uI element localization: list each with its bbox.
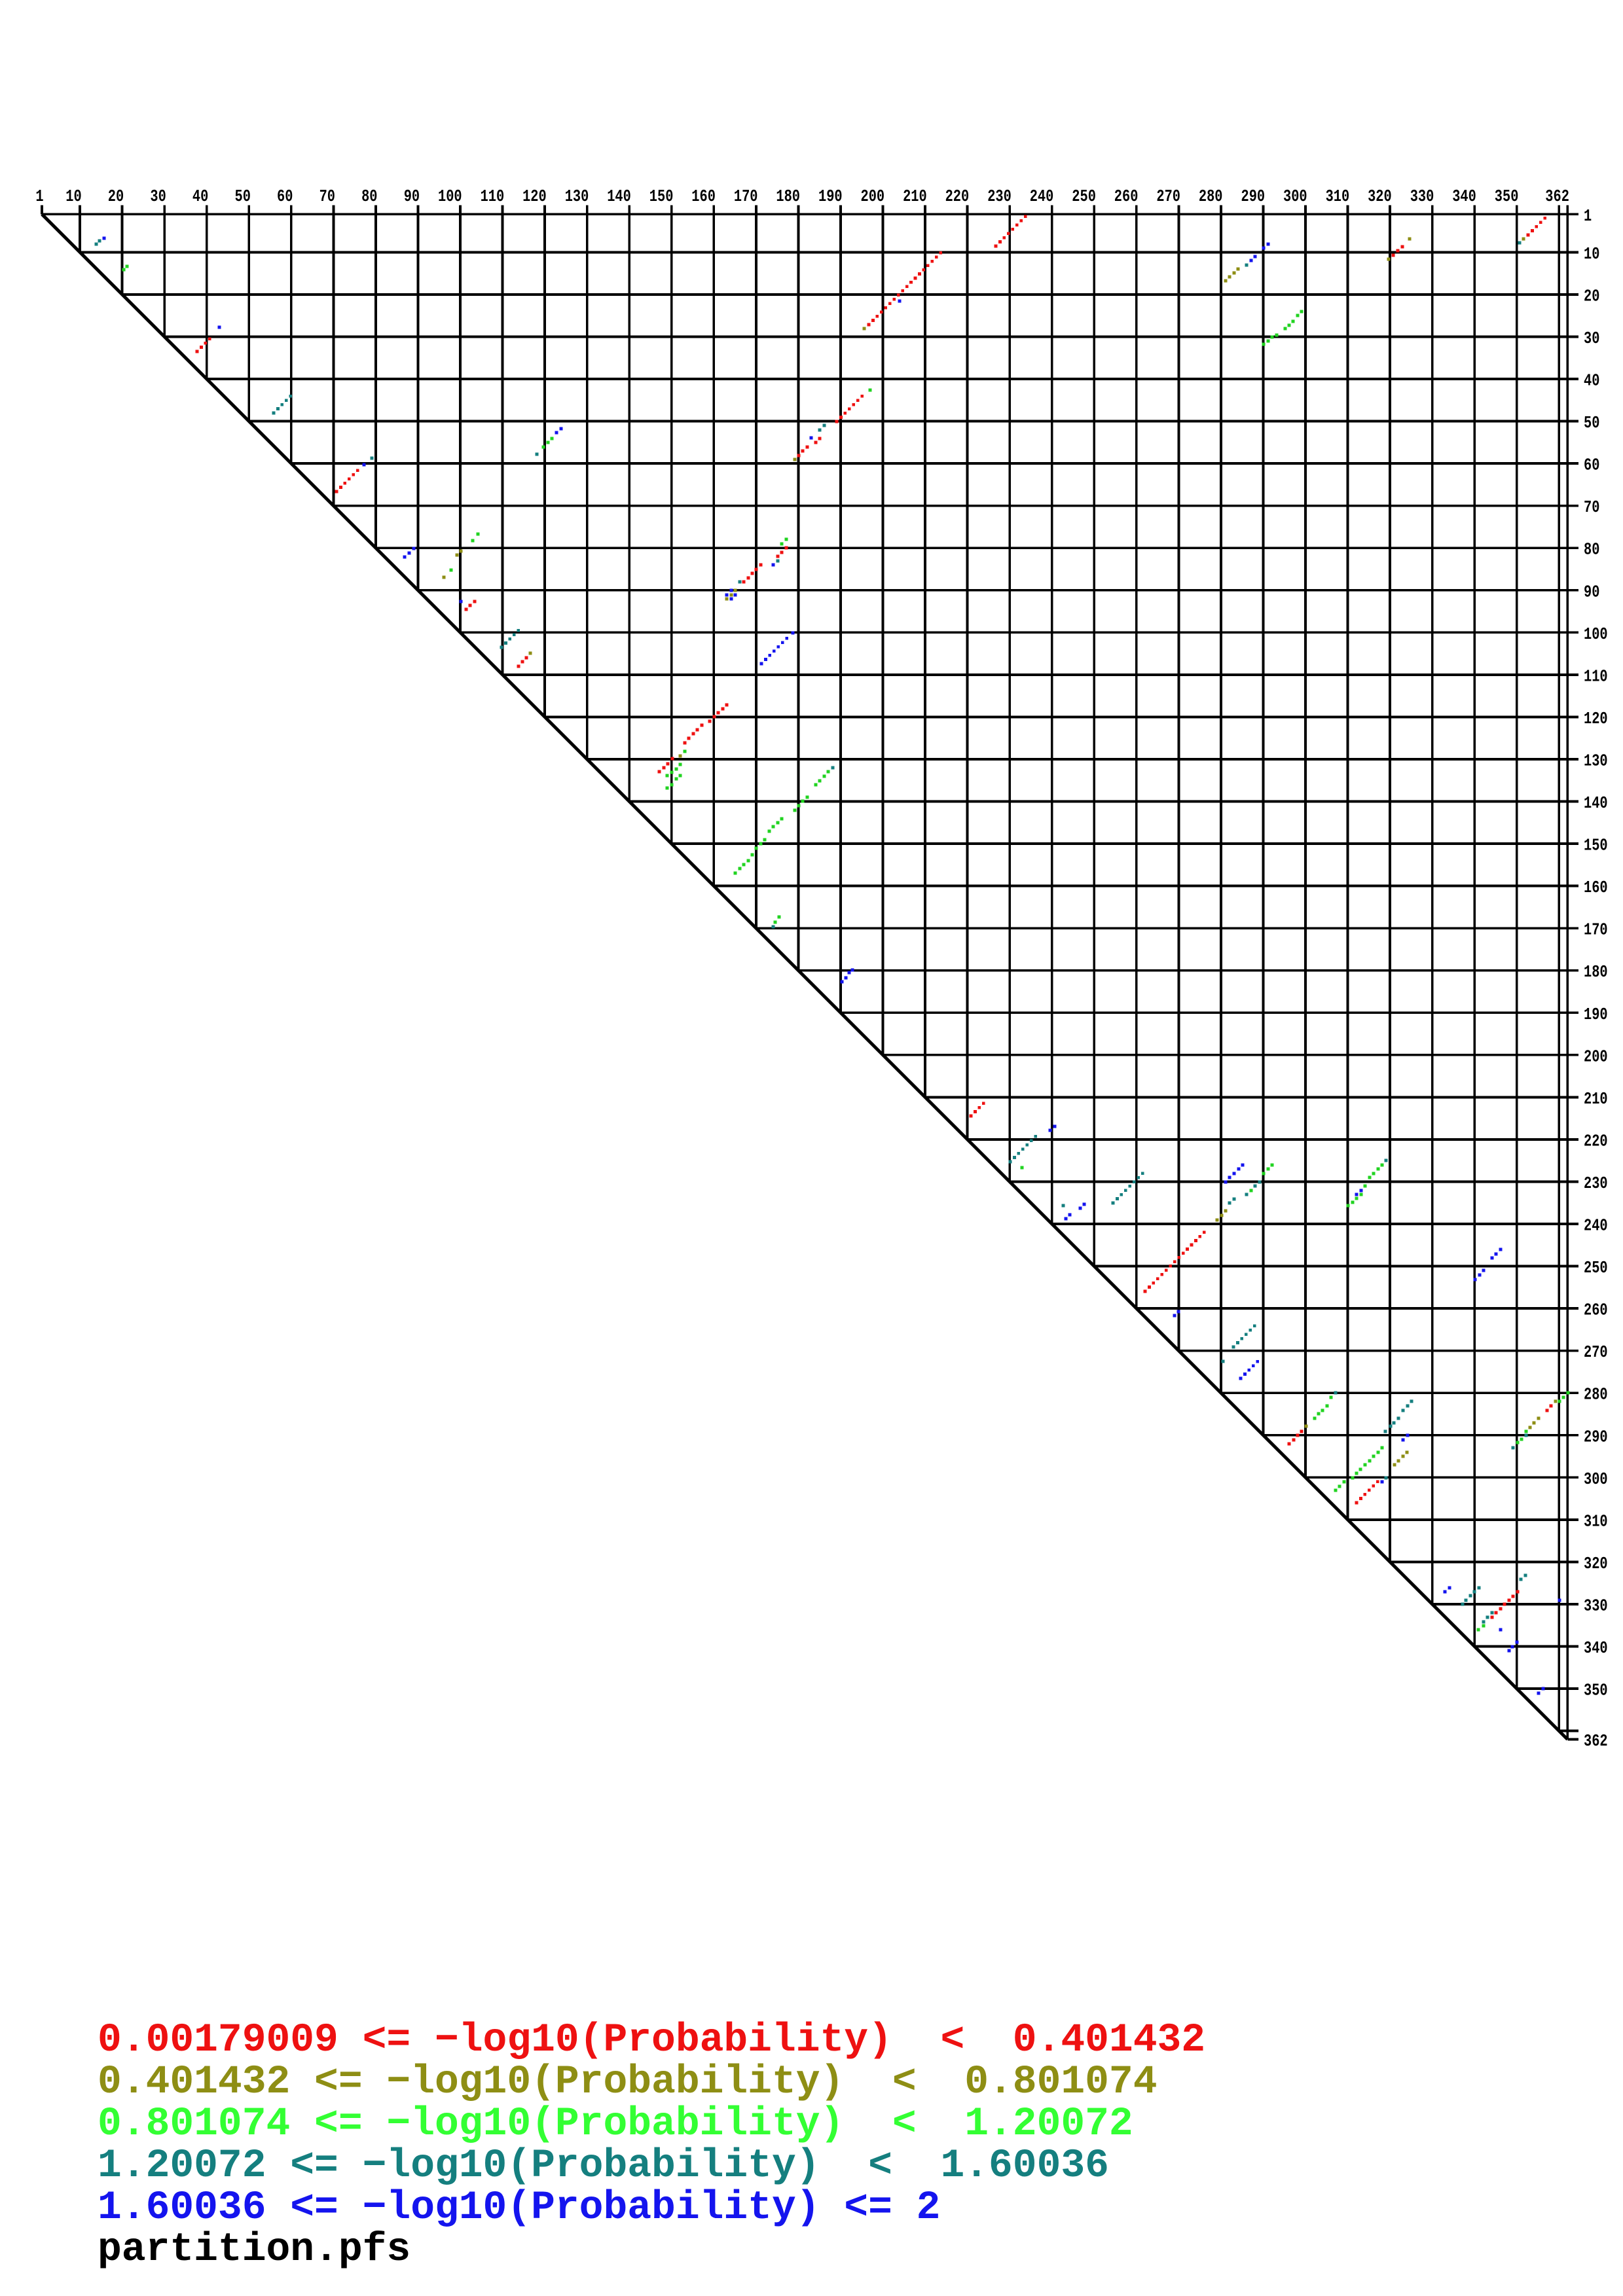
svg-text:110: 110 [481,187,505,206]
svg-text:340: 340 [1452,187,1476,206]
svg-text:0.801074 <= −log10(Probability: 0.801074 <= −log10(Probability) < 1.2007… [98,2102,1133,2147]
svg-text:0.401432 <= −log10(Probability: 0.401432 <= −log10(Probability) < 0.8010… [98,2060,1158,2105]
svg-text:320: 320 [1584,1554,1608,1573]
svg-text:350: 350 [1495,187,1519,206]
svg-text:30: 30 [150,187,166,206]
svg-text:1: 1 [35,187,43,206]
svg-text:10: 10 [1584,245,1599,264]
svg-text:70: 70 [319,187,335,206]
svg-text:160: 160 [1584,878,1608,897]
svg-text:290: 290 [1584,1427,1608,1446]
svg-text:60: 60 [1584,456,1599,475]
svg-text:60: 60 [277,187,293,206]
svg-text:280: 280 [1584,1386,1608,1405]
svg-text:140: 140 [607,187,631,206]
svg-text:90: 90 [404,187,420,206]
svg-text:150: 150 [649,187,674,206]
svg-text:120: 120 [522,187,547,206]
svg-text:220: 220 [945,187,970,206]
svg-text:190: 190 [818,187,843,206]
svg-text:362: 362 [1584,1732,1608,1751]
svg-text:0.00179009 <= −log10(Probabili: 0.00179009 <= −log10(Probability) < 0.40… [98,2018,1205,2063]
svg-text:320: 320 [1368,187,1392,206]
svg-text:240: 240 [1030,187,1054,206]
svg-text:40: 40 [1584,372,1599,391]
svg-text:110: 110 [1584,667,1608,686]
svg-text:230: 230 [987,187,1012,206]
svg-text:130: 130 [1584,752,1608,771]
svg-text:330: 330 [1410,187,1434,206]
svg-text:170: 170 [1584,921,1608,940]
svg-text:210: 210 [903,187,927,206]
svg-text:180: 180 [1584,963,1608,982]
svg-text:310: 310 [1326,187,1350,206]
svg-text:50: 50 [1584,414,1599,433]
svg-text:280: 280 [1199,187,1223,206]
svg-text:160: 160 [691,187,716,206]
svg-text:150: 150 [1584,836,1608,855]
svg-text:200: 200 [861,187,885,206]
svg-text:350: 350 [1584,1681,1608,1700]
svg-text:70: 70 [1584,498,1599,517]
svg-text:170: 170 [734,187,758,206]
svg-text:1.20072 <= −log10(Probability): 1.20072 <= −log10(Probability) < 1.60036 [98,2144,1109,2189]
svg-text:10: 10 [65,187,81,206]
svg-text:250: 250 [1584,1259,1608,1278]
svg-text:80: 80 [1584,541,1599,560]
svg-text:220: 220 [1584,1132,1608,1151]
svg-text:310: 310 [1584,1512,1608,1531]
svg-text:240: 240 [1584,1217,1608,1236]
svg-text:100: 100 [438,187,462,206]
svg-text:290: 290 [1241,187,1266,206]
svg-text:190: 190 [1584,1005,1608,1024]
svg-text:120: 120 [1584,709,1608,728]
svg-text:1: 1 [1584,207,1592,226]
svg-text:270: 270 [1156,187,1180,206]
svg-text:40: 40 [192,187,208,206]
svg-text:90: 90 [1584,583,1599,601]
svg-text:180: 180 [776,187,800,206]
svg-text:330: 330 [1584,1597,1608,1616]
svg-text:30: 30 [1584,329,1599,348]
svg-text:300: 300 [1584,1470,1608,1489]
svg-text:partition.pfs: partition.pfs [98,2227,410,2272]
svg-text:140: 140 [1584,794,1608,813]
svg-text:340: 340 [1584,1639,1608,1658]
svg-text:260: 260 [1114,187,1139,206]
svg-text:210: 210 [1584,1090,1608,1109]
svg-text:80: 80 [361,187,377,206]
svg-text:260: 260 [1584,1301,1608,1320]
svg-text:200: 200 [1584,1047,1608,1066]
svg-text:100: 100 [1584,625,1608,644]
svg-text:1.60036 <= −log10(Probability): 1.60036 <= −log10(Probability) <= 2 [98,2185,940,2231]
svg-text:230: 230 [1584,1174,1608,1193]
svg-text:362: 362 [1545,187,1569,206]
svg-text:50: 50 [235,187,251,206]
svg-text:270: 270 [1584,1343,1608,1362]
svg-text:20: 20 [1584,287,1599,306]
svg-text:130: 130 [565,187,589,206]
svg-text:20: 20 [108,187,124,206]
svg-text:250: 250 [1072,187,1096,206]
svg-text:300: 300 [1283,187,1307,206]
